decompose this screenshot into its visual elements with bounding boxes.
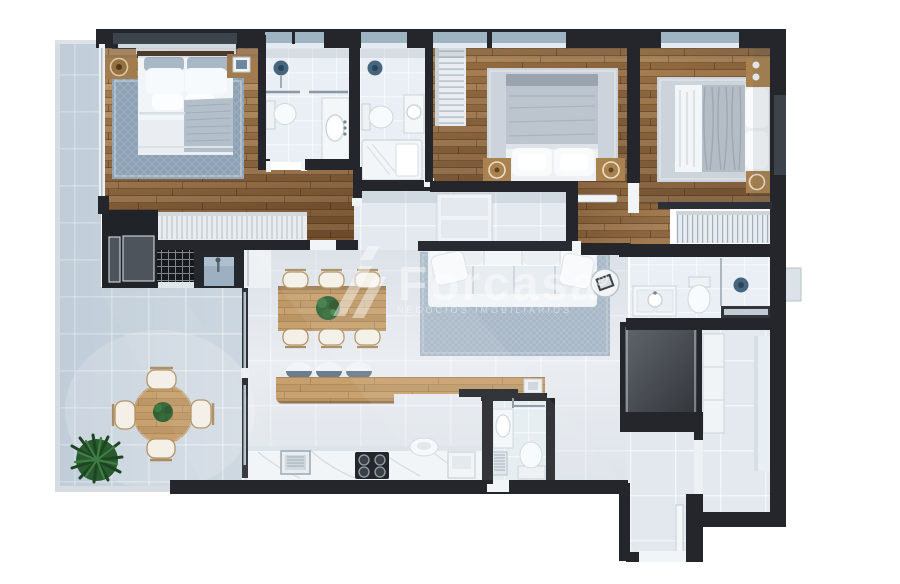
svg-text:Forcasa: Forcasa xyxy=(398,258,600,311)
svg-text:R: R xyxy=(598,275,605,285)
svg-text:NEGÓCIOS IMOBILIÁRIOS: NEGÓCIOS IMOBILIÁRIOS xyxy=(397,305,572,315)
